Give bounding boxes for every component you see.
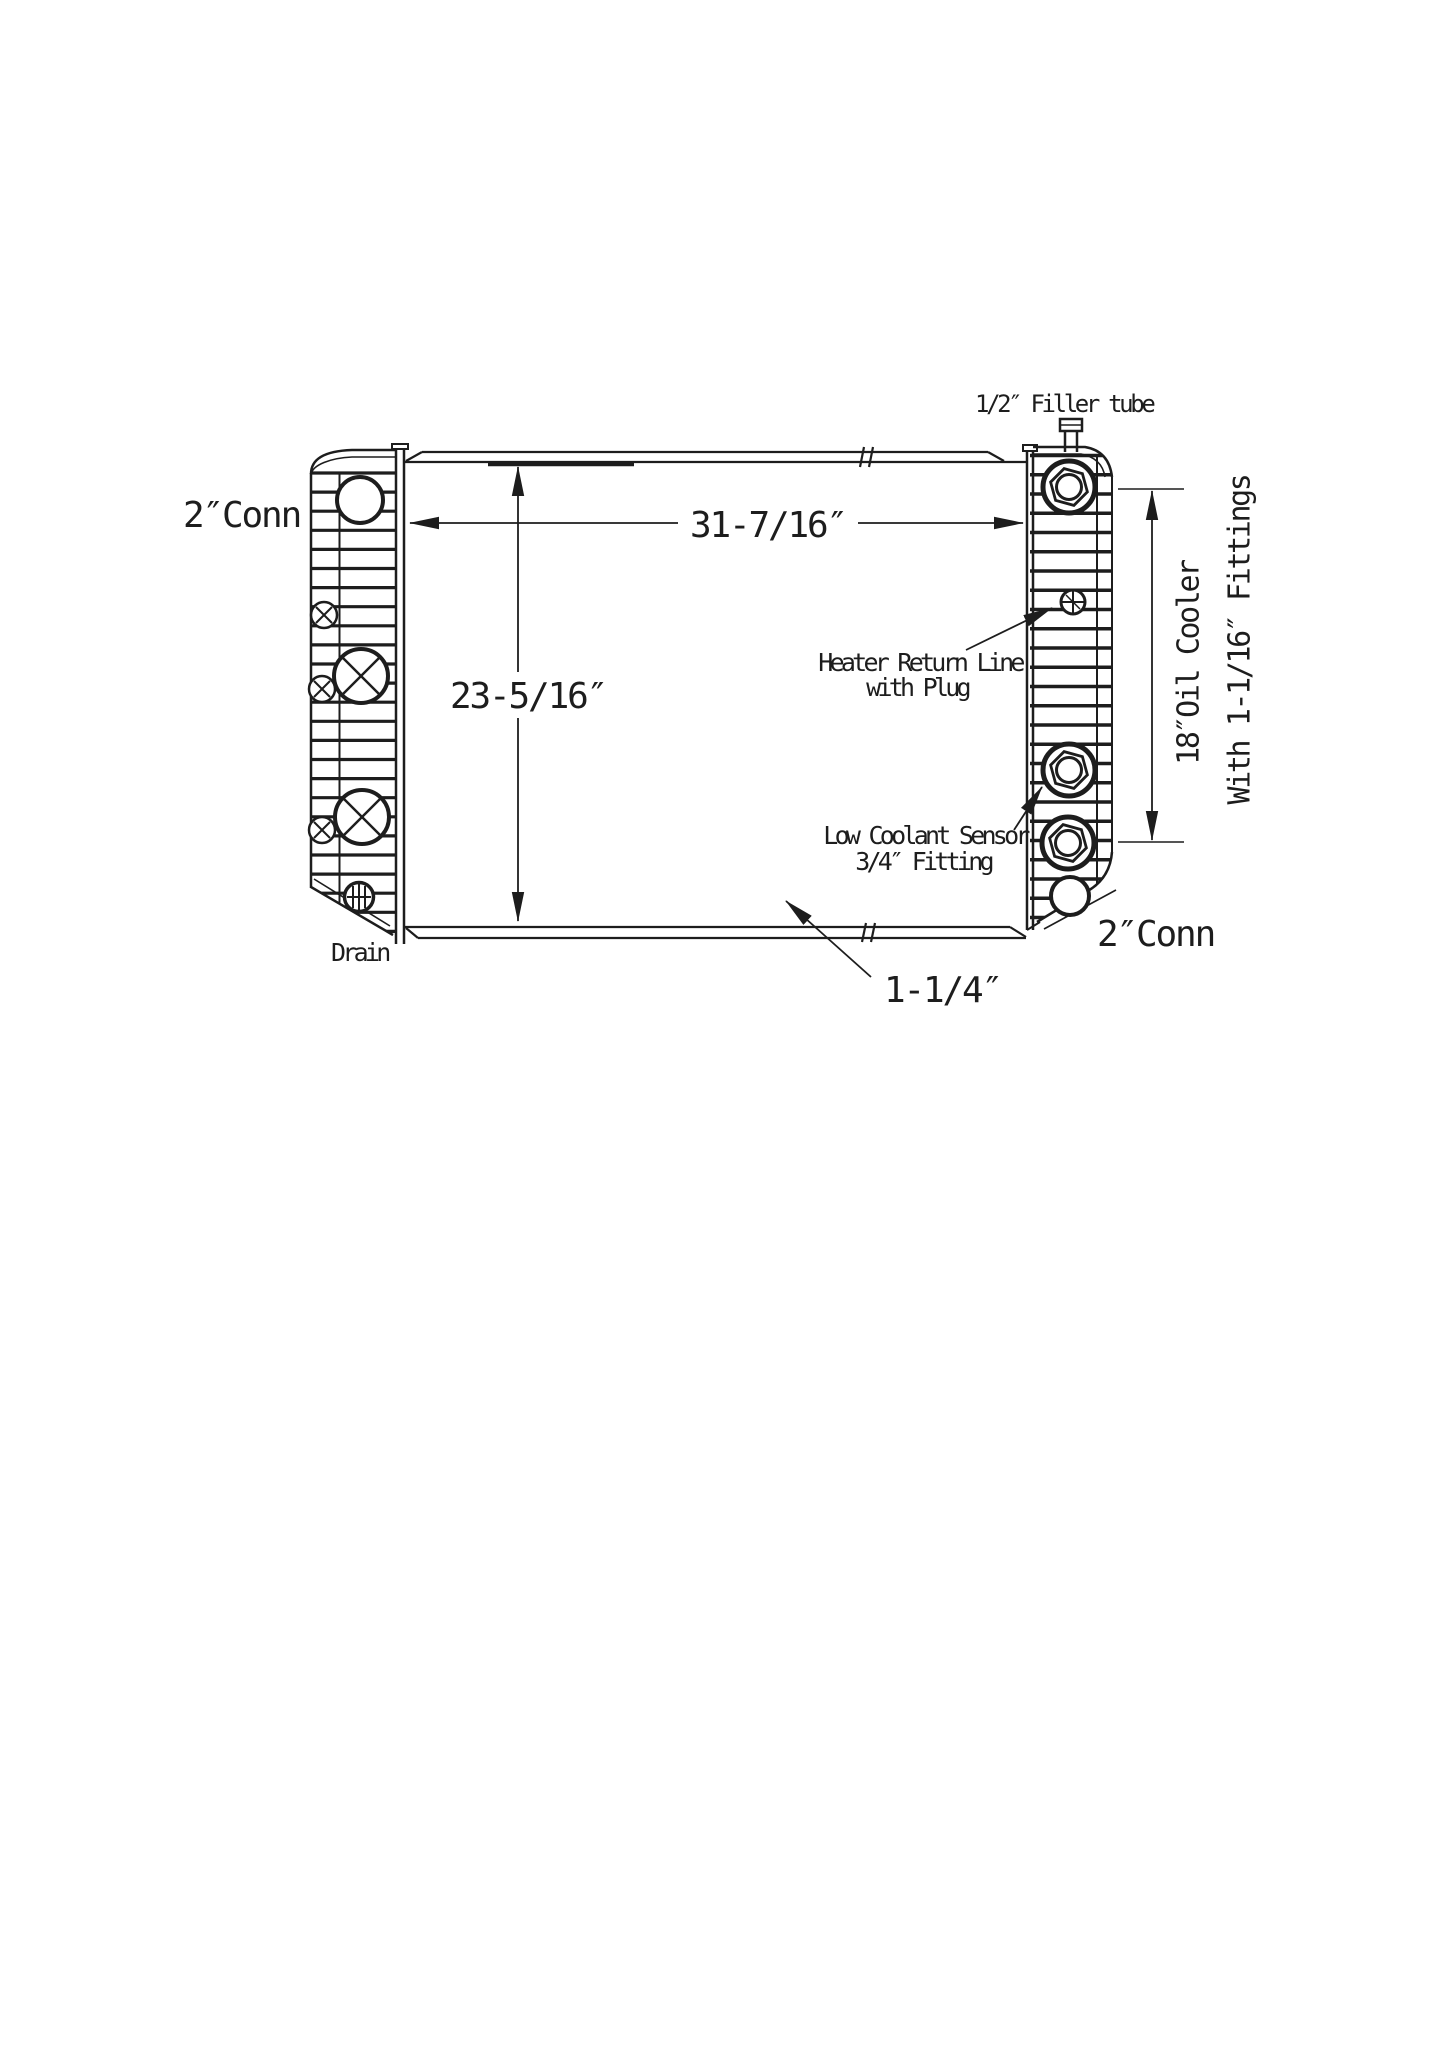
drain-fitting bbox=[345, 883, 374, 912]
label-outlet-size: 1-1/4″ bbox=[884, 970, 1001, 1011]
dimension-height: 23-5/16″ bbox=[450, 467, 606, 921]
core-bottom-left-step bbox=[406, 928, 418, 938]
right-tank bbox=[1023, 419, 1116, 930]
left-tank-wall-cap bbox=[392, 444, 408, 449]
radiator-diagram: 31-7/16″ 23-5/16″ 2″Conn 1/2″ Filler tub… bbox=[0, 0, 1448, 2048]
core-bottom-break-tick-1 bbox=[862, 923, 866, 942]
oil-cooler-hex-fittings bbox=[1042, 461, 1095, 869]
core-bottom-right-step bbox=[1010, 927, 1026, 937]
diagram-canvas: 31-7/16″ 23-5/16″ 2″Conn 1/2″ Filler tub… bbox=[0, 0, 1448, 2048]
dimension-width: 31-7/16″ bbox=[410, 505, 1023, 546]
top-left-connection-port bbox=[337, 477, 383, 523]
core-top-left-step bbox=[406, 452, 422, 461]
heater-return-plug bbox=[1061, 590, 1085, 614]
label-conn-bottom-right: 2″Conn bbox=[1097, 914, 1214, 955]
core-top-break-tick-1 bbox=[860, 447, 864, 467]
left-tank bbox=[309, 444, 408, 944]
label-drain: Drain bbox=[331, 938, 389, 967]
left-small-fitting-1 bbox=[311, 602, 337, 628]
label-conn-top-left: 2″Conn bbox=[183, 495, 300, 536]
core-top-right-step bbox=[988, 452, 1004, 461]
bottom-right-connection-port bbox=[1051, 877, 1089, 915]
left-crossed-port-1 bbox=[334, 649, 388, 703]
label-heater-return-2: with Plug bbox=[866, 673, 969, 702]
core-bottom-break-tick-2 bbox=[871, 923, 875, 942]
label-filler-tube: 1/2″ Filler tube bbox=[975, 390, 1155, 418]
left-small-fitting-3 bbox=[309, 817, 335, 843]
left-crossed-port-2 bbox=[335, 790, 389, 844]
dimension-width-text: 31-7/16″ bbox=[690, 505, 846, 546]
hex-fitting bbox=[1042, 817, 1094, 869]
label-oil-cooler-fittings: With 1-1/16″ Fittings bbox=[1223, 475, 1258, 804]
label-low-coolant-1: Low Coolant Sensor bbox=[823, 821, 1030, 850]
core-top-break-tick-2 bbox=[869, 447, 873, 467]
hex-fitting bbox=[1043, 461, 1095, 513]
dimension-height-text: 23-5/16″ bbox=[450, 676, 606, 717]
label-low-coolant-2: 3/4″ Fitting bbox=[855, 847, 992, 876]
hex-fitting bbox=[1043, 744, 1095, 796]
label-oil-cooler: 18″Oil Cooler bbox=[1172, 560, 1207, 765]
left-small-fitting-2 bbox=[309, 676, 335, 702]
